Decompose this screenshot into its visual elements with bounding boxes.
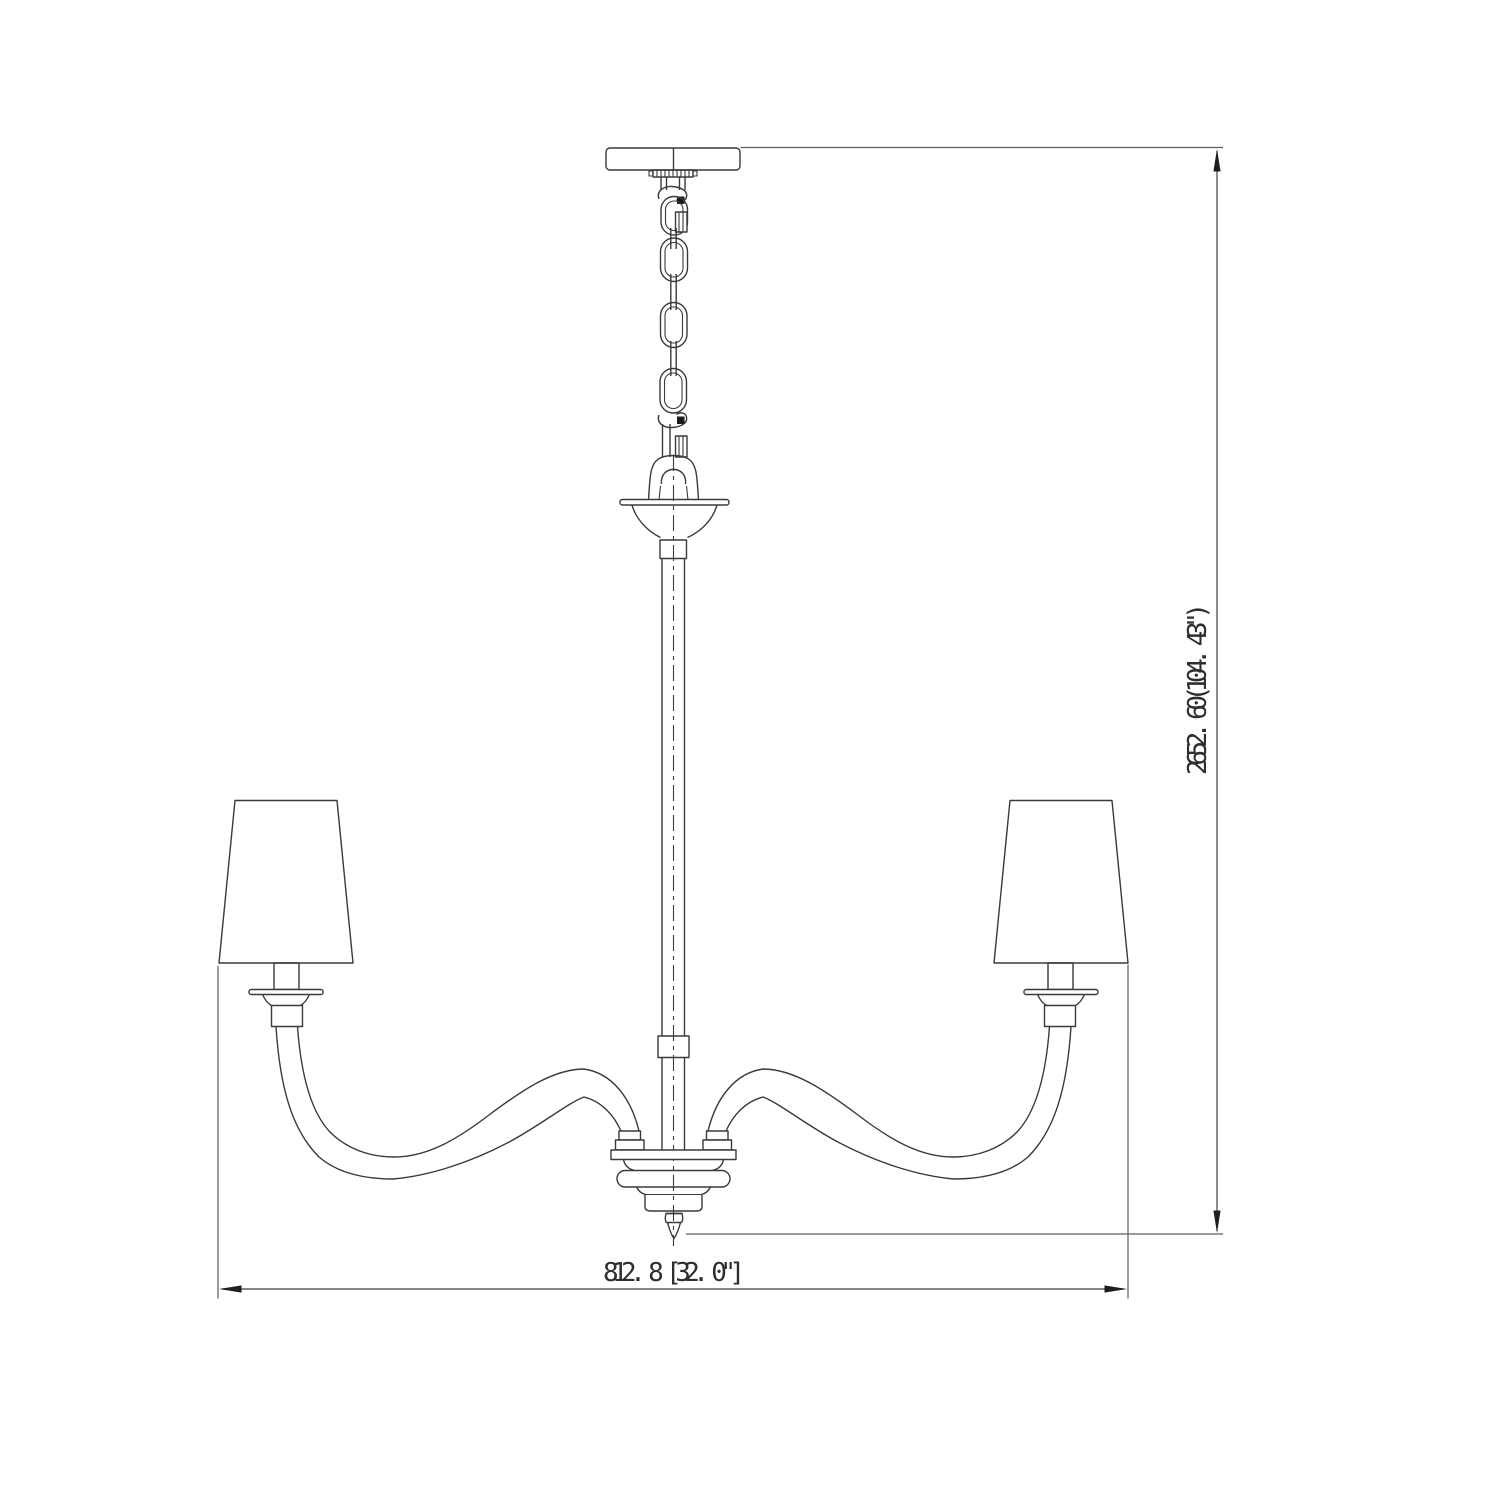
drawing-canvas: 2652. 60(104. 43") 812. 8 [32. 0"] [0,0,1500,1500]
bell-curve-right [688,505,718,538]
candle-sleeve [274,963,299,990]
height-dimension: 2652. 60(104. 43") [686,148,1223,1235]
bell-disc [620,500,729,506]
right-arm-and-shade [703,801,1128,1180]
hub-cavetto-right [713,1160,724,1171]
candle-cup [272,1006,303,1027]
arrow-left-icon [219,1285,242,1292]
nut-knurl-hatch [657,170,689,177]
bobeche-funnel-right [301,995,310,1006]
hub-cavetto2-left [637,1187,646,1195]
quick-link-top-sleeve [676,212,688,232]
bobeche-disc [249,990,323,995]
loop-leg [659,486,661,500]
hub-cavetto-left [624,1160,635,1171]
bottom-hook-nut [677,417,685,425]
width-dimension-label: 812. 8 [32. 0"] [603,1258,745,1288]
quick-link-bottom-sleeve [676,436,688,457]
arm-tube-inner [276,1027,621,1180]
hub-cavetto2-right [702,1187,711,1195]
chain-link-inner [665,373,683,409]
bell-curve-left [632,505,661,538]
chain-link-inner [665,243,683,278]
lamp-shade [219,801,353,964]
hub-plate [611,1150,736,1160]
ceiling-canopy [606,148,740,177]
arm-socket [616,1140,645,1150]
width-dimension: 812. 8 [32. 0"] [218,965,1128,1299]
arrow-down-icon [1213,1211,1220,1234]
chandelier-dimension-drawing: 2652. 60(104. 43") 812. 8 [32. 0"] [0,0,1500,1500]
bobeche-funnel-left [263,995,272,1006]
loop-leg [687,486,689,500]
arm-socket-cap [619,1131,641,1140]
chain-link-inner [665,307,683,343]
arrow-up-icon [1213,149,1220,172]
center-stem [658,455,689,1246]
left-arm-and-shade [219,801,644,1180]
arrow-right-icon [1105,1285,1128,1292]
chandelier-figure [219,148,1128,1246]
height-dimension-label: 2652. 60(104. 43") [1183,603,1213,775]
trumpet-bell [620,500,729,559]
arm-tube-outer [298,1027,640,1158]
hanging-chain [658,177,687,457]
